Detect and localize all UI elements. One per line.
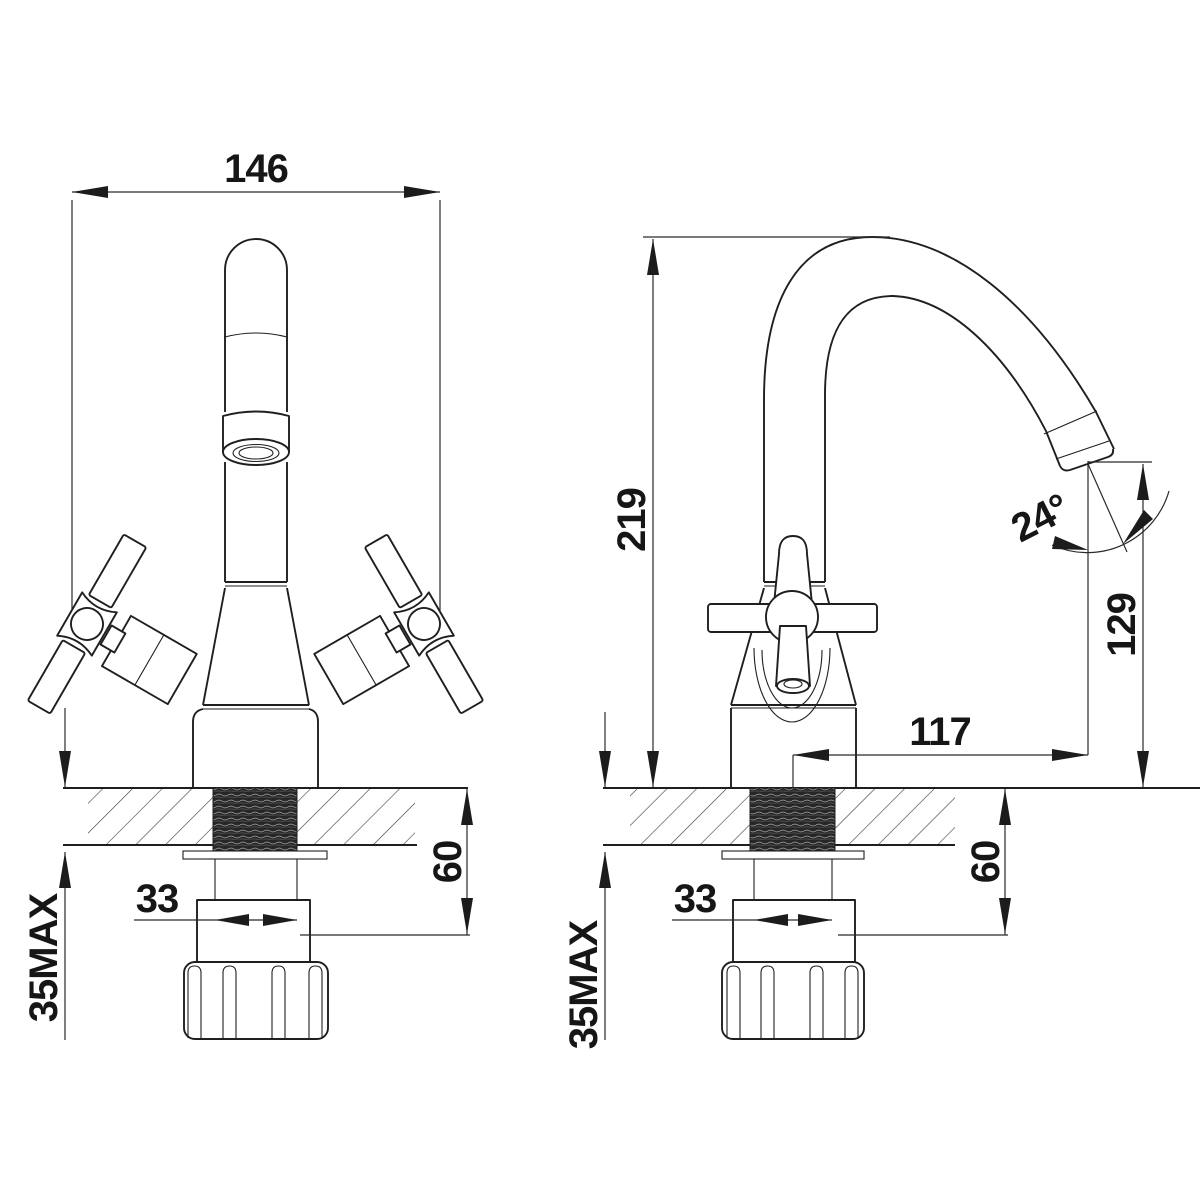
deck-hatch-right (835, 789, 955, 844)
base-left-edge (193, 709, 203, 788)
dim-label-shank-length: 60 (964, 841, 1008, 884)
dim-deck-thickness-front: 35MAX (22, 708, 71, 1040)
locknut-skirt (722, 962, 864, 1039)
spout-column (225, 239, 287, 412)
nozzle-joint-line (1044, 411, 1097, 434)
dim-label-shank-diameter: 33 (674, 877, 717, 921)
body-cone-right (287, 588, 309, 705)
dim-outlet-height: 129 (1088, 462, 1152, 787)
handle-arm (365, 534, 423, 608)
washer (722, 851, 864, 859)
arrowhead (599, 751, 611, 787)
technical-drawing: 146 35MAX 60 33 (0, 0, 1200, 1200)
spout-joint-line (225, 333, 287, 337)
dim-label-deck-thickness: 35MAX (562, 919, 606, 1049)
deck-hatch-left (630, 789, 750, 844)
dim-deck-thickness-side: 35MAX (562, 712, 611, 1049)
locknut-upper (197, 900, 310, 962)
handle-arm (426, 640, 484, 714)
arrowhead (793, 749, 829, 761)
deck-side (603, 788, 1200, 845)
dim-label-deck-thickness: 35MAX (22, 892, 66, 1022)
arrowhead (599, 852, 611, 888)
handle-left (22, 531, 231, 762)
arrowhead (404, 186, 440, 198)
arrowhead (1052, 749, 1088, 761)
handle-arm-end-cap (777, 679, 809, 693)
arrowhead (59, 852, 71, 888)
deck-hatch-right (297, 789, 415, 844)
base-right-edge (309, 709, 318, 788)
arrowhead (999, 898, 1011, 934)
threaded-stud (750, 788, 835, 851)
dim-label-spout-reach: 117 (909, 710, 971, 754)
arrowhead (647, 239, 659, 275)
arrowhead (1052, 536, 1088, 550)
side-view: 219 129 117 24° (562, 237, 1200, 1049)
drawing-canvas: 146 35MAX 60 33 (0, 0, 1200, 1200)
deck-hatch-left (88, 789, 213, 844)
body-cone-left (203, 588, 225, 705)
handle-arm (28, 640, 86, 714)
nozzle-outlet-rim (1056, 441, 1109, 459)
washer (183, 851, 327, 859)
arrowhead (59, 751, 71, 787)
arrowhead (461, 789, 473, 825)
handle-bottom-arm (776, 626, 810, 686)
threaded-stud (213, 788, 297, 851)
nozzle-outlet-face (1060, 449, 1113, 471)
faucet-body-front (193, 239, 318, 788)
handle-arm (89, 534, 147, 608)
arrowhead (647, 751, 659, 787)
dim-label-shank-diameter: 33 (136, 877, 179, 921)
arrowhead (999, 789, 1011, 825)
locknut-skirt (184, 962, 328, 1039)
handle-right (281, 531, 490, 762)
dim-label-overall-height: 219 (610, 488, 654, 552)
dim-label-outlet-height: 129 (1100, 593, 1144, 657)
dim-label-overall-width: 146 (224, 147, 288, 191)
front-view: 146 35MAX 60 33 (22, 147, 490, 1040)
arrowhead (1137, 464, 1149, 500)
arrowhead (72, 186, 108, 198)
locknut-upper (733, 900, 855, 962)
arrowhead (461, 898, 473, 934)
dim-label-shank-length: 60 (426, 841, 470, 884)
arrowhead (1137, 751, 1149, 787)
